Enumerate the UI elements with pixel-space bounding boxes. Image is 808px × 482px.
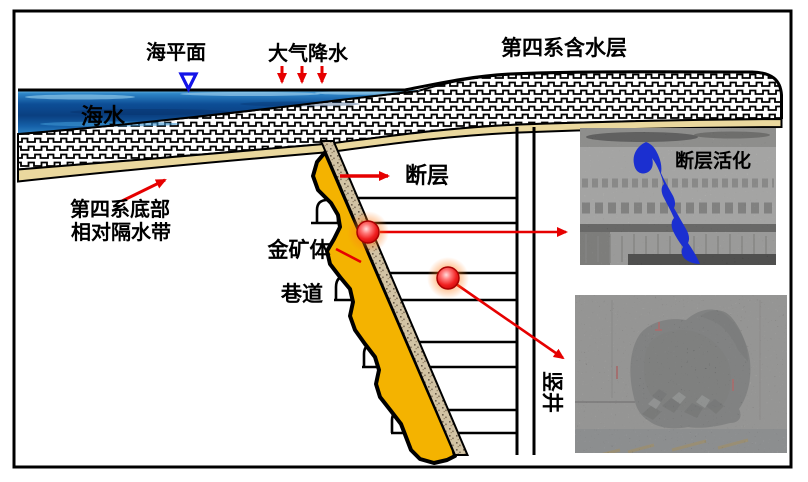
- diagram-canvas: 断层活化 海平面 大气降水: [0, 0, 808, 482]
- label-fault-activation: 断层活化: [675, 149, 751, 172]
- inset-water-inrush-photo: [575, 295, 787, 455]
- label-gold-ore-body: 金矿体: [267, 238, 332, 262]
- label-aquitard-line1: 第四系底部: [70, 197, 170, 221]
- label-fault: 断层: [405, 163, 449, 188]
- cross-section-svg: 断层活化 海平面 大气降水: [0, 0, 808, 482]
- label-seawater: 海水: [81, 104, 126, 129]
- label-aquitard-line2: 相对隔水带: [71, 220, 171, 244]
- label-sea-level: 海平面: [146, 40, 206, 64]
- label-tunnel: 巷道: [280, 282, 323, 306]
- label-precipitation: 大气降水: [268, 41, 349, 65]
- hazard-point-icon: [347, 211, 389, 253]
- inset-fault-activation-photo: 断层活化: [580, 128, 776, 265]
- label-shaft: 竖井: [540, 371, 563, 413]
- label-quaternary-aquifer: 第四系含水层: [501, 36, 627, 60]
- hazard-point-icon: [427, 257, 469, 299]
